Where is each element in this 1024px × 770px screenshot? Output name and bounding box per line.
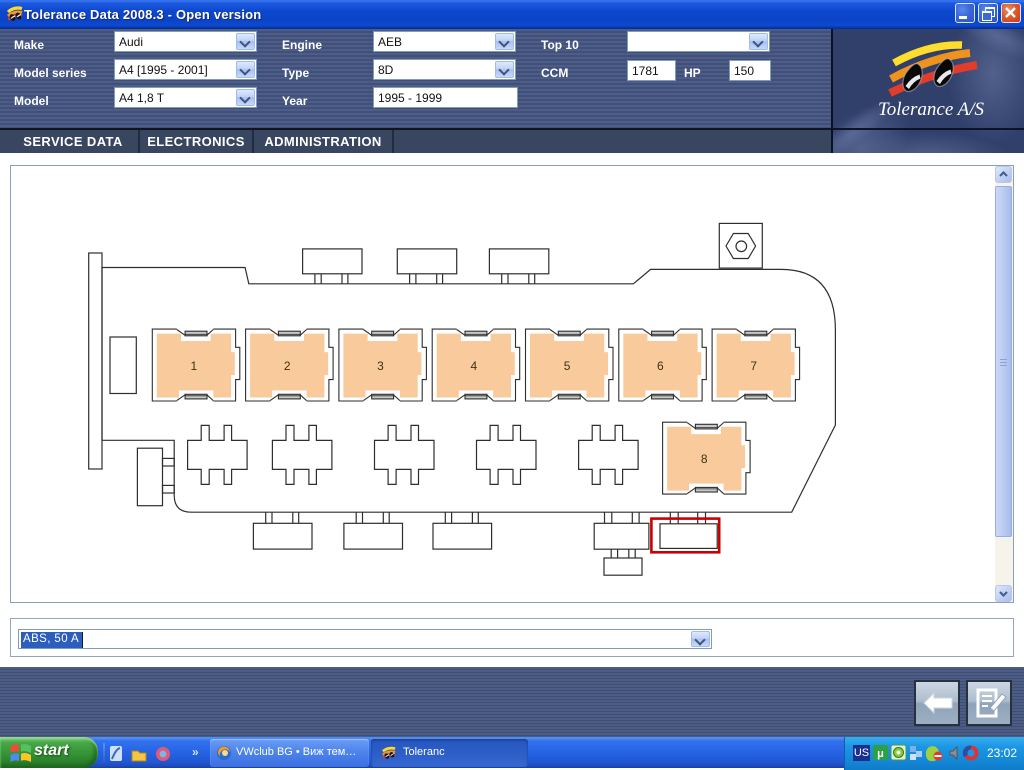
svg-text:μ: μ <box>877 748 884 760</box>
svg-text:3: 3 <box>377 359 384 373</box>
svg-text:7: 7 <box>750 359 757 373</box>
svg-text:8: 8 <box>701 452 708 466</box>
svg-text:1: 1 <box>191 359 198 373</box>
svg-text:4: 4 <box>470 359 477 373</box>
svg-text:5: 5 <box>564 359 571 373</box>
svg-text:6: 6 <box>657 359 664 373</box>
svg-text:2: 2 <box>284 359 291 373</box>
svg-text:Tolerance A/S: Tolerance A/S <box>878 99 985 120</box>
